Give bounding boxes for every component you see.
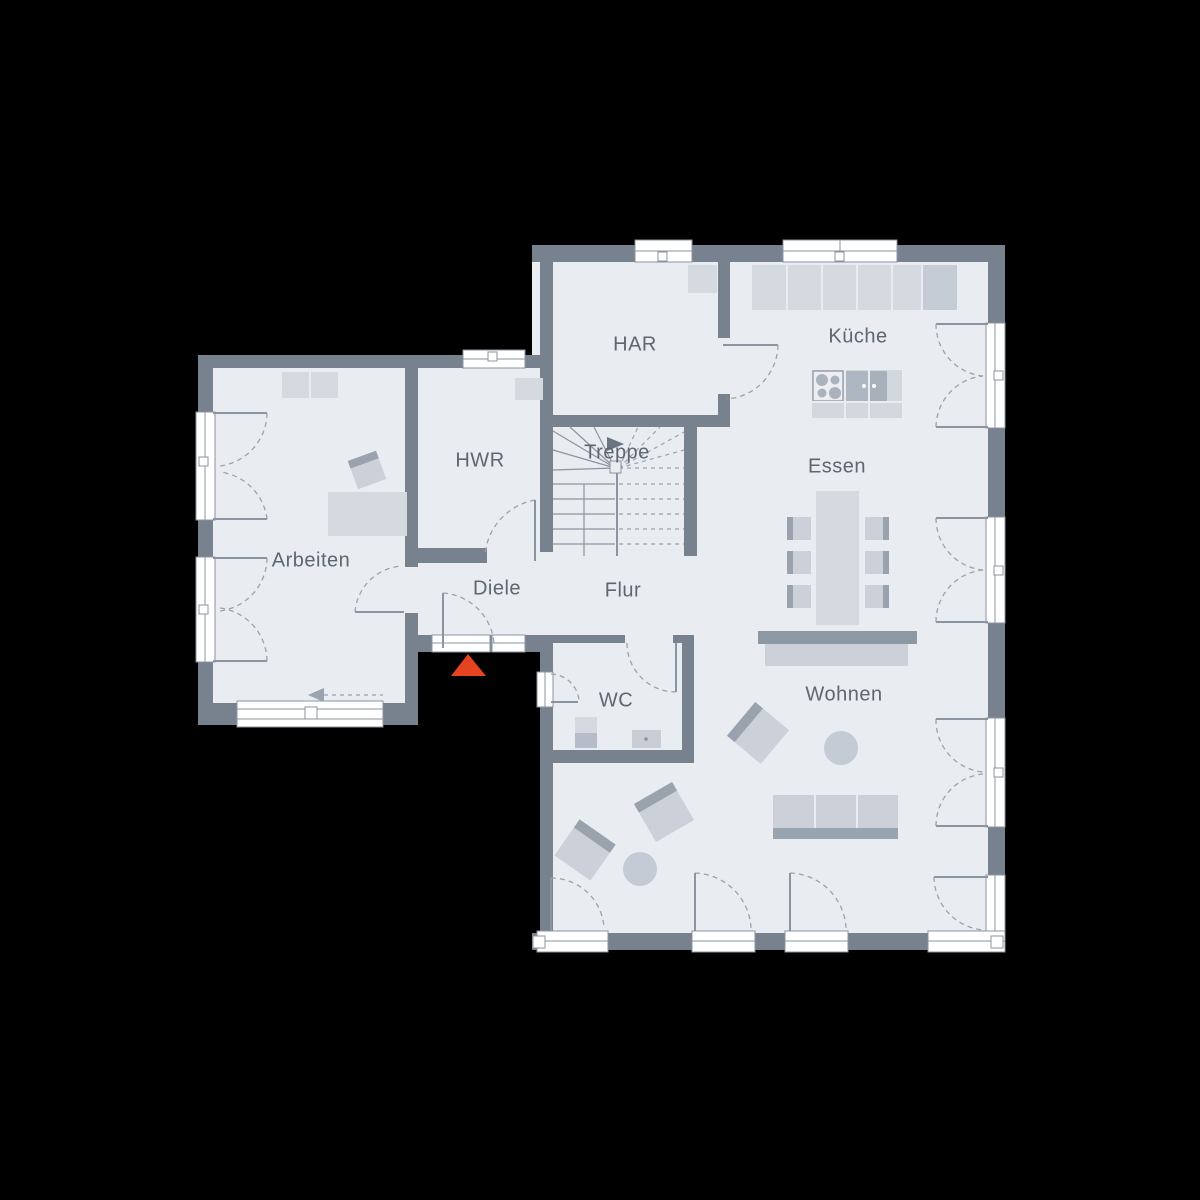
window-handle-icon — [658, 252, 667, 261]
room-label-diele: Diele — [473, 578, 521, 601]
sofa-seats — [773, 795, 898, 828]
room-label-essen: Essen — [808, 456, 866, 479]
window-handle-icon — [199, 605, 208, 614]
kitchen-counter-end — [922, 265, 957, 310]
window-handle-icon — [199, 457, 208, 466]
sofa-backrest — [773, 828, 898, 839]
corner-post — [533, 936, 545, 948]
window-handle-icon — [488, 352, 497, 361]
room-label-flur: Flur — [605, 580, 641, 603]
toilet — [575, 717, 597, 735]
toilet-tank — [575, 733, 597, 748]
burner-icon — [818, 389, 827, 398]
room-label-treppe: Treppe — [584, 442, 650, 465]
har-appliance — [688, 265, 717, 293]
wall-hwr-bottom — [405, 548, 487, 563]
window-handle-icon — [305, 707, 317, 719]
wall-stair-right — [684, 427, 697, 556]
window-handle-icon — [994, 566, 1003, 575]
wall-arbeiten-right-lower — [405, 613, 418, 725]
wall-main-top — [532, 245, 1005, 262]
wall-wc-top-left — [553, 635, 625, 643]
floorplan-svg — [0, 0, 1200, 1200]
room-label-kueche: Küche — [828, 326, 887, 349]
burner-icon — [829, 387, 841, 399]
room-label-wc: WC — [599, 690, 633, 713]
faucet-icon — [862, 384, 866, 388]
window-handle-icon — [835, 252, 844, 261]
side-table — [623, 852, 657, 886]
burner-icon — [816, 374, 828, 386]
dining-table — [816, 491, 859, 625]
faucet-icon — [872, 384, 876, 388]
desk — [328, 492, 407, 536]
floorplan-canvas: HAR Küche HWR Treppe Essen Arbeiten Diel… — [0, 0, 1200, 1200]
wall-wc-right — [682, 635, 694, 763]
wall-wing-left — [198, 355, 213, 725]
coffee-table — [824, 731, 858, 765]
room-label-har: HAR — [613, 334, 657, 357]
window-handle-icon — [994, 371, 1003, 380]
burner-icon — [831, 376, 840, 385]
sideboard — [758, 631, 917, 644]
room-label-wohnen: Wohnen — [805, 684, 882, 707]
wall-stair-top — [540, 415, 730, 427]
corner-post — [991, 936, 1003, 948]
hwr-appliance — [515, 378, 543, 400]
window-handle-icon — [994, 768, 1003, 777]
drain-icon — [644, 737, 648, 741]
room-label-arbeiten: Arbeiten — [272, 550, 351, 573]
sideboard-base — [765, 644, 908, 666]
room-label-hwr: HWR — [455, 450, 504, 473]
entrance-recess-outside — [418, 652, 540, 950]
wall-arbeiten-right-upper — [405, 368, 418, 567]
wall-har-right-upper — [718, 245, 730, 338]
wall-wc-bottom — [553, 750, 694, 763]
